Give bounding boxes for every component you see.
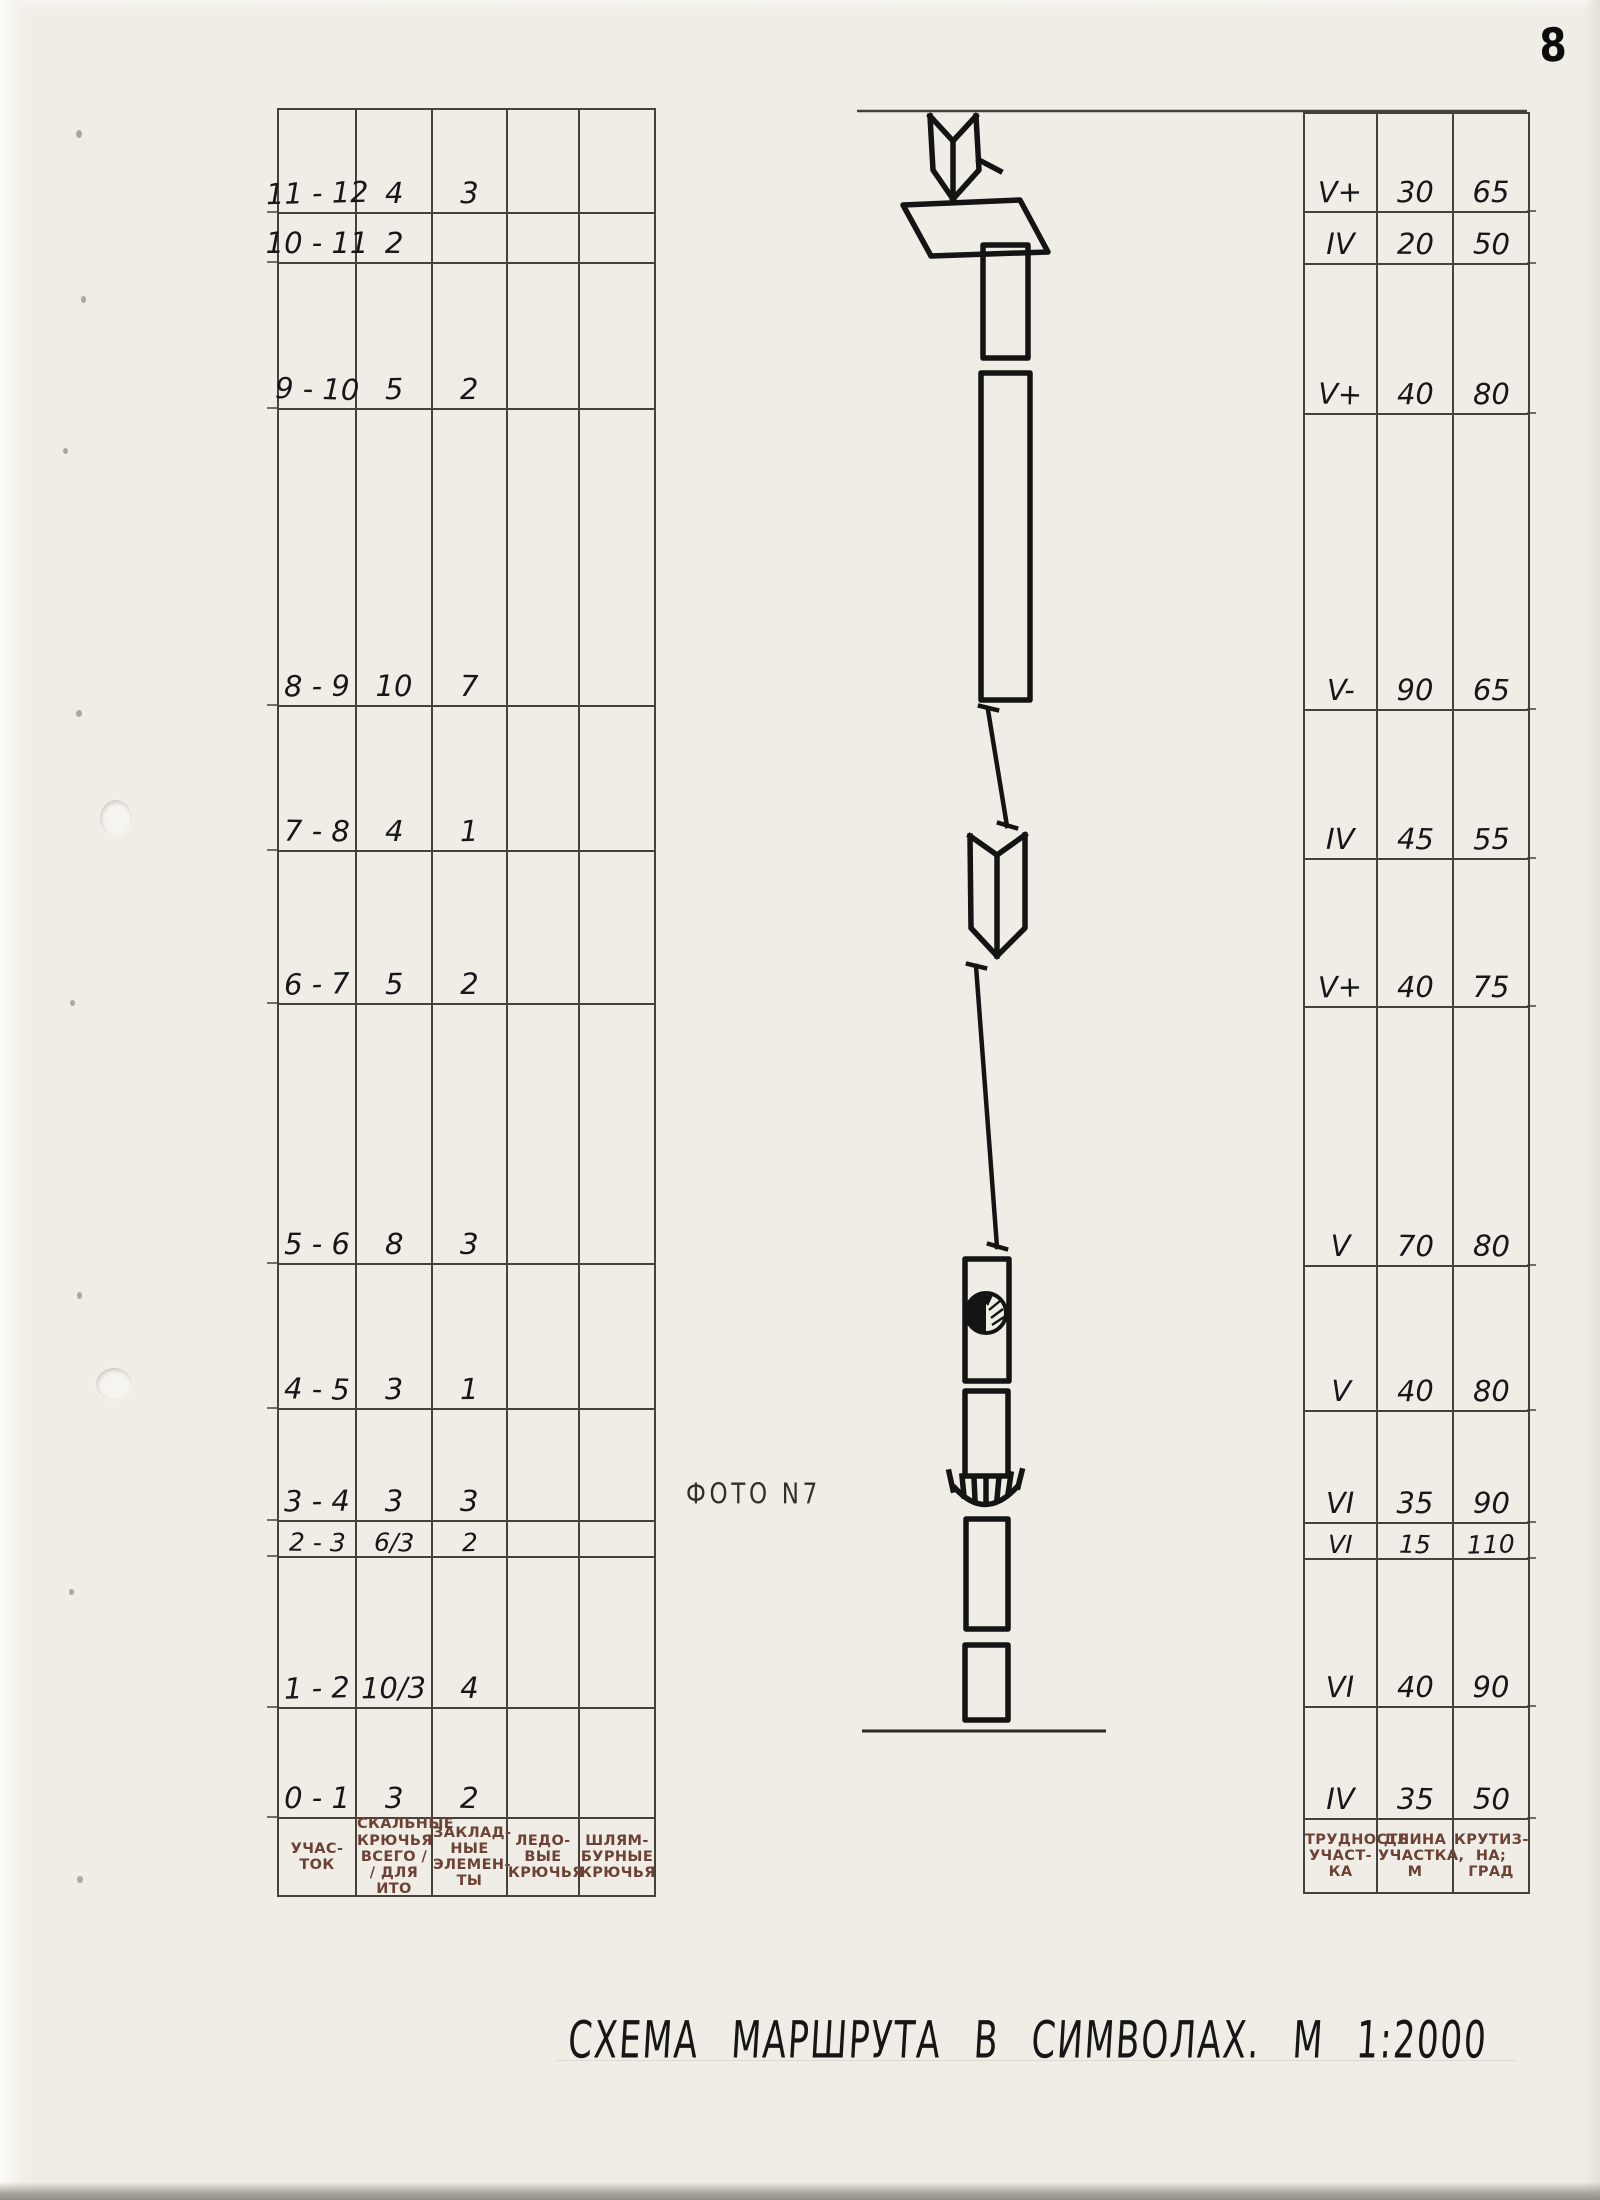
equipment-value-cell [580,1265,654,1408]
pencil-overshoot [267,261,277,263]
pencil-overshoot [267,1555,277,1557]
equipment-value-cell [508,1410,580,1520]
equipment-column-header: ЛЕДО- ВЫЕ КРЮЧЬЯ [508,1819,580,1895]
scan-edge-bottom [0,2182,1600,2200]
equipment-value-cell: 10 [357,410,433,705]
difficulty-header-row: ТРУДНОСТЬ УЧАСТ- КАДЛИНА УЧАСТКА, МКРУТИ… [1305,1820,1528,1892]
equipment-value-cell [580,410,654,705]
wall-segment-icon [966,1519,1008,1629]
equipment-value-cell [580,264,654,408]
equipment-value-cell [580,1410,654,1520]
equipment-value-cell: 6/3 [357,1522,433,1556]
traverse-line [980,706,1016,828]
scanned-route-page: 8 11 - 124310 - 1129 - 10528 - 91077 - 8… [0,0,1600,2200]
paper-speck [76,130,82,138]
equipment-column-header: СКАЛЬНЫЕ КРЮЧЬЯ ВСЕГО ∕ ∕ ДЛЯ ИТО [357,1819,433,1895]
equipment-value-cell: 3 [433,1410,508,1520]
equipment-value-cell: 2 [433,1709,508,1817]
equipment-value-cell [508,264,580,408]
wall-segment-icon [981,373,1030,700]
equipment-value-cell: 3 [357,1709,433,1817]
equipment-section-label: 8 - 9 [279,410,357,705]
equipment-value-cell: 10/3 [357,1558,433,1707]
equipment-section-label: 4 - 5 [279,1265,357,1408]
route-symbol-diagram [840,90,1530,1770]
equipment-value-cell: 3 [433,110,508,212]
difficulty-column-header: ДЛИНА УЧАСТКА, М [1378,1820,1454,1892]
equipment-value-cell [508,1522,580,1556]
equipment-value-cell: 3 [357,1265,433,1408]
equipment-row-10 - 11: 10 - 112 [279,214,654,264]
pencil-overshoot [267,1706,277,1708]
equipment-value-cell: 2 [357,214,433,262]
equipment-section-label: 3 - 4 [279,1410,357,1520]
equipment-row-5 - 6: 5 - 683 [279,1005,654,1265]
equipment-value-cell: 4 [357,707,433,850]
equipment-row-2 - 3: 2 - 36/32 [279,1522,654,1558]
paper-speck [77,1292,82,1299]
pencil-overshoot [267,211,277,213]
equipment-value-cell: 7 [433,410,508,705]
descent-arrow-corner-icon [930,116,1000,199]
paper-speck [63,448,68,454]
equipment-value-cell: 8 [357,1005,433,1263]
equipment-section-label: 0 - 1 [279,1709,357,1817]
paper-speck [81,296,86,303]
equipment-column-header: УЧАС- ТОК [279,1819,357,1895]
traverse-line [968,964,1006,1249]
grotto-icon [966,1293,1006,1333]
equipment-row-6 - 7: 6 - 752 [279,852,654,1005]
equipment-table: 11 - 124310 - 1129 - 10528 - 91077 - 841… [277,108,656,1897]
pencil-overshoot [267,1002,277,1004]
pencil-overshoot [267,704,277,706]
equipment-value-cell [580,852,654,1003]
equipment-row-7 - 8: 7 - 841 [279,707,654,852]
pencil-overshoot [267,1816,277,1818]
scan-edge-left [0,0,30,2200]
pencil-overshoot [267,1262,277,1264]
equipment-value-cell: 5 [357,264,433,408]
pencil-overshoot [267,407,277,409]
equipment-value-cell: 3 [357,1410,433,1520]
difficulty-column-header: КРУТИЗ- НА; ГРАД [1454,1820,1528,1892]
equipment-row-4 - 5: 4 - 531 [279,1265,654,1410]
paper-speck [77,1876,83,1883]
inner-corner-icon [970,835,1025,956]
equipment-value-cell [580,214,654,262]
punch-hole [100,800,132,836]
equipment-value-cell [508,707,580,850]
equipment-value-cell: 4 [433,1558,508,1707]
equipment-value-cell [580,1522,654,1556]
equipment-row-0 - 1: 0 - 132 [279,1709,654,1819]
equipment-value-cell [580,1005,654,1263]
equipment-value-cell: 3 [433,1005,508,1263]
pencil-overshoot [267,849,277,851]
photo-label: ФОТО N7 [686,1477,821,1510]
equipment-value-cell [508,110,580,212]
equipment-section-label: 7 - 8 [279,707,357,850]
equipment-value-cell [580,1709,654,1817]
equipment-value-cell: 2 [433,852,508,1003]
equipment-section-label: 9 - 10 [279,264,357,408]
wall-segment-icon [965,1645,1008,1720]
equipment-value-cell [433,214,508,262]
equipment-value-cell [508,410,580,705]
equipment-section-label: 5 - 6 [279,1005,357,1263]
equipment-row-11 - 12: 11 - 1243 [279,110,654,214]
equipment-row-9 - 10: 9 - 1052 [279,264,654,410]
equipment-row-3 - 4: 3 - 433 [279,1410,654,1522]
difficulty-column-header: ТРУДНОСТЬ УЧАСТ- КА [1305,1820,1378,1892]
equipment-value-cell [508,852,580,1003]
equipment-value-cell [508,214,580,262]
equipment-value-cell [508,1709,580,1817]
equipment-row-8 - 9: 8 - 9107 [279,410,654,707]
equipment-column-header: ШЛЯМ- БУРНЫЕ КРЮЧЬЯ [580,1819,654,1895]
equipment-value-cell [508,1265,580,1408]
equipment-header-row: УЧАС- ТОКСКАЛЬНЫЕ КРЮЧЬЯ ВСЕГО ∕ ∕ ДЛЯ И… [279,1819,654,1895]
paper-speck [69,1589,74,1595]
equipment-value-cell: 5 [357,852,433,1003]
equipment-section-label: 1 - 2 [279,1558,357,1707]
equipment-value-cell: 2 [433,264,508,408]
equipment-section-label: 2 - 3 [279,1522,357,1556]
equipment-value-cell [580,707,654,850]
equipment-section-label: 6 - 7 [279,852,357,1003]
page-number: 8 [1539,17,1568,72]
equipment-column-header: ЗАКЛАД- НЫЕ ЭЛЕМЕН- ТЫ [433,1819,508,1895]
pencil-guideline [556,2060,1516,2061]
pencil-overshoot [267,1519,277,1521]
paper-speck [76,710,82,717]
equipment-value-cell: 2 [433,1522,508,1556]
equipment-row-1 - 2: 1 - 210/34 [279,1558,654,1709]
equipment-section-label: 10 - 11 [279,214,357,262]
paper-speck [70,1000,75,1006]
equipment-value-cell: 1 [433,1265,508,1408]
equipment-section-label: 11 - 12 [279,110,357,212]
equipment-value-cell [580,110,654,212]
scan-edge-top [0,0,1600,10]
equipment-value-cell [508,1558,580,1707]
pencil-overshoot [267,1407,277,1409]
equipment-value-cell: 1 [433,707,508,850]
scan-edge-right [1584,0,1600,2200]
pencil-overshoot [1527,1817,1536,1819]
wall-segment-icon [983,245,1028,358]
wall-segment-icon [965,1391,1008,1476]
punch-hole [96,1368,132,1400]
equipment-value-cell [508,1005,580,1263]
equipment-value-cell [580,1558,654,1707]
